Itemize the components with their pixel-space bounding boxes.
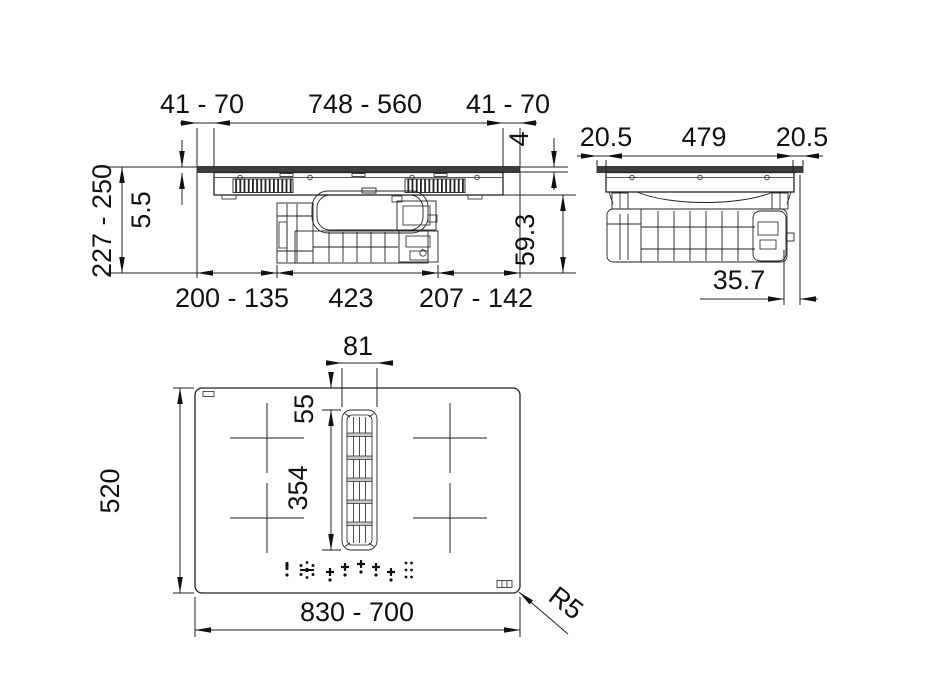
dim-plan-hob-depth: 520 xyxy=(95,468,125,513)
dim-plan-hob-width: 830 - 700 xyxy=(300,597,414,627)
plan-hob-outline xyxy=(195,388,520,593)
plan-connector-box xyxy=(497,581,512,588)
touch-control-symbols xyxy=(285,560,413,582)
dim-front-motor-width: 423 xyxy=(328,283,373,313)
front-vent-grille-right xyxy=(405,179,465,193)
plan-rear-marker xyxy=(203,392,214,397)
front-section-view: 41 - 70 748 - 560 41 - 70 200 - 135 423 … xyxy=(87,89,576,313)
side-housing xyxy=(606,173,794,210)
front-motor-ribs xyxy=(313,232,398,262)
dim-front-offset-right: 207 - 142 xyxy=(419,283,533,313)
dim-front-top-profile: 5.5 xyxy=(126,191,156,229)
dim-plan-grille-length: 354 xyxy=(283,465,313,510)
side-section-view: 20.5 479 20.5 35.7 xyxy=(577,122,828,305)
dim-front-overhang-right: 41 - 70 xyxy=(466,89,550,119)
side-motor-ribs xyxy=(641,211,755,261)
technical-drawing-page: 41 - 70 748 - 560 41 - 70 200 - 135 423 … xyxy=(0,0,948,694)
dim-side-rear-clearance: 35.7 xyxy=(713,265,766,295)
dim-front-overhang-left: 41 - 70 xyxy=(160,89,244,119)
front-motor-assembly xyxy=(277,188,438,263)
power-icon xyxy=(285,562,288,577)
side-motor-assembly xyxy=(607,209,794,262)
fan-boost-icon xyxy=(300,561,315,579)
technical-drawing-canvas: 41 - 70 748 - 560 41 - 70 200 - 135 423 … xyxy=(0,0,948,694)
dim-front-under-glass-height: 59.3 xyxy=(510,214,540,267)
dim-front-offset-left: 200 - 135 xyxy=(175,283,289,313)
dim-side-overhang-front: 20.5 xyxy=(580,122,633,152)
dim-front-install-height: 227 - 250 xyxy=(87,164,117,278)
dim-plan-grille-offset: 55 xyxy=(289,394,319,424)
front-glass-panel xyxy=(197,167,520,173)
timer-dots-icon xyxy=(405,562,413,579)
dim-front-glass-thickness: 4 xyxy=(504,131,534,146)
zone-selector-icons xyxy=(326,560,395,582)
plan-extraction-grille xyxy=(342,410,377,550)
front-vent-grille-left xyxy=(233,179,293,193)
dim-front-cutout-width: 748 - 560 xyxy=(308,89,422,119)
front-extension-lines xyxy=(107,128,576,278)
top-plan-view: 81 55 354 520 830 - 700 R5 xyxy=(95,331,589,637)
dim-plan-grille-width: 81 xyxy=(343,331,373,361)
dim-side-overhang-rear: 20.5 xyxy=(776,122,829,152)
side-glass-panel xyxy=(597,167,803,173)
dim-side-cutout-depth: 479 xyxy=(681,122,726,152)
